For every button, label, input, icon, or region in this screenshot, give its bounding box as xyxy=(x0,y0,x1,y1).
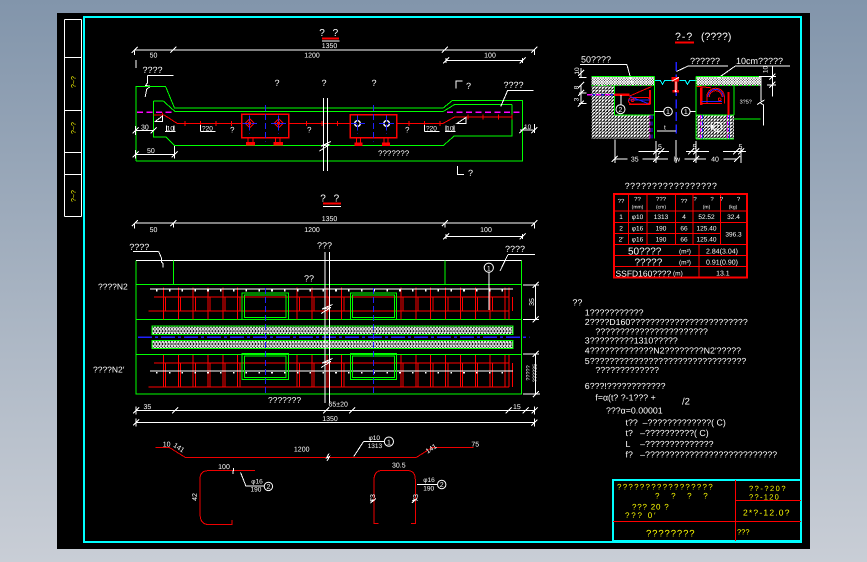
svg-text:8: 8 xyxy=(574,85,581,89)
svg-text:73: 73 xyxy=(370,494,377,502)
svg-text:lw: lw xyxy=(673,156,681,164)
svg-text:40: 40 xyxy=(711,157,719,164)
svg-text:100: 100 xyxy=(218,464,230,471)
svg-text:???????: ??????? xyxy=(268,395,301,405)
svg-text:?: ? xyxy=(274,78,279,88)
svg-text:32.4: 32.4 xyxy=(727,214,740,221)
svg-text:SSFD160????: SSFD160???? xyxy=(616,268,672,278)
svg-text:?????????????????: ????????????????? xyxy=(625,181,718,191)
svg-text:??: ?? xyxy=(618,198,625,205)
svg-text:75: 75 xyxy=(471,442,479,449)
svg-text:50????: 50???? xyxy=(581,55,611,65)
svg-text:52.52: 52.52 xyxy=(698,214,715,221)
svg-text:1313: 1313 xyxy=(368,443,383,450)
svg-text:(m³): (m³) xyxy=(679,260,691,267)
svg-text:13.1: 13.1 xyxy=(716,271,730,278)
svg-text:???: ??? xyxy=(737,528,750,537)
svg-text:? ?: ? ? xyxy=(319,28,340,39)
svg-text:?????: ????? xyxy=(526,365,532,380)
svg-text:????35: ????35 xyxy=(533,364,539,382)
svg-text:(mm): (mm) xyxy=(632,205,644,211)
svg-text:??????: ?????? xyxy=(690,56,720,66)
svg-text:10: 10 xyxy=(163,442,171,449)
svg-text:???????: ??????? xyxy=(378,149,410,158)
svg-text:35: 35 xyxy=(631,157,639,164)
svg-text:3: 3 xyxy=(574,97,581,101)
svg-text:?: ? xyxy=(321,78,326,88)
svg-text:1: 1 xyxy=(619,214,623,221)
svg-text:2*?-12.0?: 2*?-12.0? xyxy=(743,508,791,518)
svg-text:10: 10 xyxy=(574,67,581,75)
svg-text:(m²): (m²) xyxy=(679,249,691,256)
svg-text:?: ? xyxy=(371,78,376,88)
svg-text:????: ???? xyxy=(505,244,525,254)
svg-text:15: 15 xyxy=(513,404,521,411)
svg-text:??: ?? xyxy=(572,298,582,308)
svg-text:? ?: ? ? xyxy=(693,196,719,203)
svg-text:6???!????????????: 6???!???????????? xyxy=(585,381,666,391)
svg-text:????N2: ????N2 xyxy=(98,282,128,292)
svg-text:1350: 1350 xyxy=(322,43,338,50)
svg-text:???: ??? xyxy=(317,241,332,251)
svg-text:100: 100 xyxy=(484,53,496,60)
svg-text:3?????????1310?????: 3?????????1310????? xyxy=(585,336,678,346)
svg-text:1200: 1200 xyxy=(304,53,320,60)
svg-text:50: 50 xyxy=(147,148,155,155)
svg-text:t?? –?????????????( C): t?? –?????????????( C) xyxy=(626,418,726,428)
svg-text:190: 190 xyxy=(423,486,434,493)
svg-text:?: ? xyxy=(466,81,471,91)
svg-text:φ16: φ16 xyxy=(632,225,644,232)
svg-text:1: 1 xyxy=(487,265,491,272)
svg-text:125.40: 125.40 xyxy=(697,236,717,243)
svg-text:190: 190 xyxy=(656,236,667,243)
svg-text:f=α(t? ?-1??? +: f=α(t? ?-1??? + xyxy=(595,393,655,403)
svg-text:φ16: φ16 xyxy=(251,479,263,486)
svg-text:(m): (m) xyxy=(703,205,711,211)
svg-text:/2: /2 xyxy=(682,397,690,408)
svg-text:65±20: 65±20 xyxy=(329,402,349,409)
svg-text:φ16: φ16 xyxy=(632,236,644,243)
svg-text:?~?: ?~? xyxy=(71,190,78,202)
svg-text:?: ? xyxy=(230,126,235,135)
svg-text:1350: 1350 xyxy=(322,416,338,423)
svg-text:L –??????????????: L –?????????????? xyxy=(626,439,714,449)
svg-text:10: 10 xyxy=(763,66,770,74)
svg-text:1: 1 xyxy=(387,439,391,446)
svg-text:35: 35 xyxy=(529,298,536,306)
svg-text:396.3: 396.3 xyxy=(725,231,742,238)
svg-text:?: ? xyxy=(468,168,473,178)
svg-text:1313: 1313 xyxy=(654,214,669,221)
svg-text:??-120: ??-120 xyxy=(749,493,780,502)
svg-text:1: 1 xyxy=(684,109,688,116)
svg-text:50: 50 xyxy=(150,227,158,234)
svg-text:2: 2 xyxy=(619,107,623,114)
svg-text:φ10: φ10 xyxy=(369,435,381,442)
svg-text:50????: 50???? xyxy=(628,247,662,258)
svg-text:? ? ? ?: ? ? ? ? xyxy=(655,492,712,501)
svg-text:5: 5 xyxy=(739,144,743,151)
svg-text:4?????????????N2????????N2′???: 4?????????????N2????????N2′????? xyxy=(585,346,741,356)
svg-text:1350: 1350 xyxy=(322,216,338,223)
svg-text:5: 5 xyxy=(658,144,662,151)
svg-text:(????): (????) xyxy=(701,31,731,43)
svg-text:?????????????????: ????????????????? xyxy=(617,483,714,492)
svg-text:?~?: ?~? xyxy=(71,76,78,88)
svg-text:t? –??????????( C): t? –??????????( C) xyxy=(626,428,709,438)
svg-text:(m): (m) xyxy=(673,271,683,278)
svg-text:?: ? xyxy=(405,126,410,135)
svg-text:50: 50 xyxy=(150,53,158,60)
svg-text:190: 190 xyxy=(656,225,667,232)
svg-text:(cm): (cm) xyxy=(656,205,666,211)
svg-text:30.5: 30.5 xyxy=(392,463,406,470)
svg-text:φ16: φ16 xyxy=(423,477,435,484)
svg-text:1200: 1200 xyxy=(294,447,310,454)
svg-text:66: 66 xyxy=(680,225,688,232)
svg-text:??? 0′: ??? 0′ xyxy=(625,511,657,520)
svg-text:100: 100 xyxy=(480,227,492,234)
svg-text:3?5?: 3?5? xyxy=(740,100,752,106)
svg-text:2.84(3.04): 2.84(3.04) xyxy=(706,248,738,256)
svg-text:4: 4 xyxy=(682,214,686,221)
svg-text:???α=0.00001: ???α=0.00001 xyxy=(606,406,663,416)
svg-text:t: t xyxy=(664,125,666,132)
svg-text:????: ???? xyxy=(504,80,524,90)
svg-text:66: 66 xyxy=(680,236,688,243)
svg-text:1: 1 xyxy=(666,109,670,116)
svg-text:10cm?????: 10cm????? xyxy=(736,56,783,66)
svg-text:????????: ???????? xyxy=(646,529,695,540)
svg-text:??: ?? xyxy=(634,196,641,203)
svg-text:?????????????: ????????????? xyxy=(595,365,659,375)
svg-text:???: ??? xyxy=(656,196,667,203)
svg-text:? ?: ? ? xyxy=(720,196,746,203)
svg-text:f? –????????????????????????: f? –??????????????????????????? xyxy=(626,450,778,460)
svg-text:73: 73 xyxy=(413,494,420,502)
svg-text:?????: ????? xyxy=(635,258,663,269)
svg-text:?-?: ?-? xyxy=(675,31,693,43)
svg-text:????: ???? xyxy=(143,65,163,75)
svg-text:2: 2 xyxy=(716,125,720,132)
svg-text:??: ?? xyxy=(304,274,314,284)
svg-text:2: 2 xyxy=(266,484,270,491)
svg-text:(kg): (kg) xyxy=(729,205,738,211)
svg-text:1???????????: 1??????????? xyxy=(585,307,644,317)
svg-text:2′: 2′ xyxy=(619,236,625,243)
svg-text:35: 35 xyxy=(144,404,152,411)
svg-text:2: 2 xyxy=(440,482,444,489)
svg-text:42: 42 xyxy=(192,493,199,501)
svg-text:1200: 1200 xyxy=(304,227,320,234)
svg-text:?: ? xyxy=(307,126,312,135)
svg-text:φ10: φ10 xyxy=(632,214,644,221)
svg-text:2: 2 xyxy=(619,225,623,232)
svg-text:????: ???? xyxy=(129,242,149,252)
svg-text:?~?: ?~? xyxy=(71,122,78,134)
svg-text:190: 190 xyxy=(251,486,262,493)
svg-text:??: ?? xyxy=(681,198,688,205)
svg-text:125.40: 125.40 xyxy=(697,225,717,232)
svg-text:????N2′: ????N2′ xyxy=(93,365,125,375)
svg-text:0.91(0.90): 0.91(0.90) xyxy=(706,259,738,267)
